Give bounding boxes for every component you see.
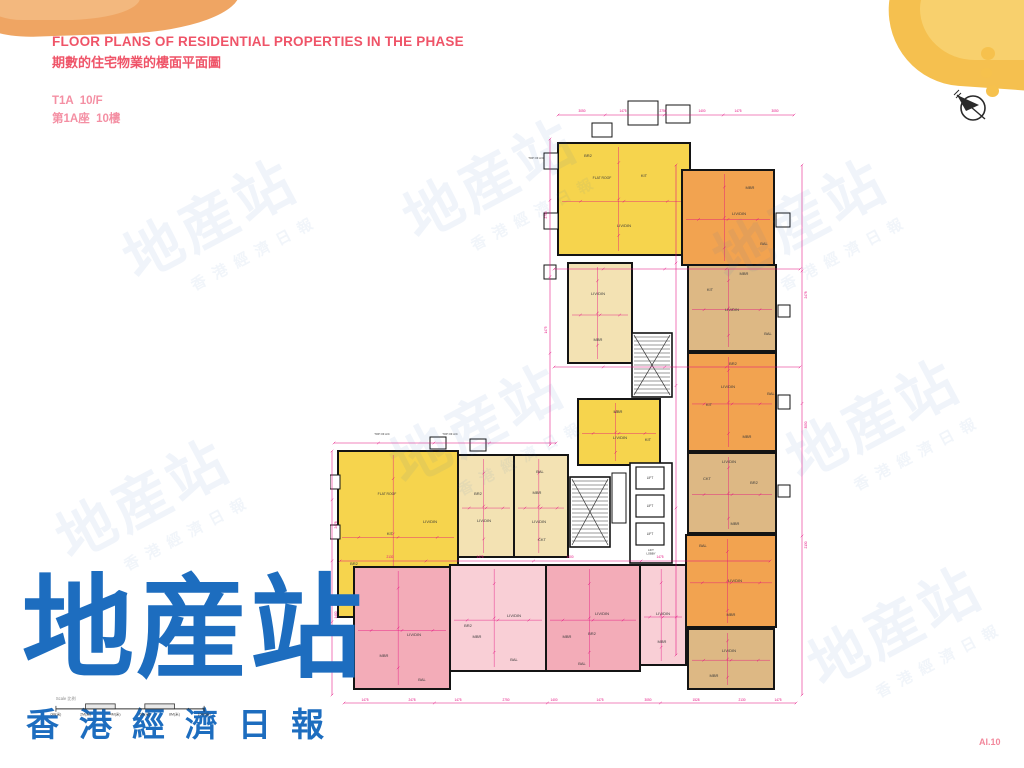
dimension-label: 2130 [738,698,745,702]
dimension-label: 1528 [692,698,699,702]
room-label: KIT [641,173,648,178]
floor-plan-svg: FLAT ROOFKITLIV/DINBR2MBRLIV/DINBALLIV/D… [330,95,820,710]
scale-tick-label: 0M(米) [51,712,62,717]
watermark-main: 地産站 [106,133,313,296]
watercolor-splash-top-left [0,0,241,38]
room-label: LIV/DIN [595,611,609,616]
unit: LIV/DINMBRBAL [354,567,450,689]
room-label: KIT [707,287,714,292]
plan-note: TOP OF A/C [442,432,458,436]
room-label: BR2 [350,561,359,566]
room-label: MBR [563,634,572,639]
unit: BALMBRLIV/DINCKT [514,455,568,557]
room-label: LIV/DIN [407,632,421,637]
page-number: AI.10 [979,737,1001,747]
room-label: BR2 [584,153,593,158]
header: FLOOR PLANS OF RESIDENTIAL PROPERTIES IN… [52,34,464,126]
lifts: LIFTLIFTLIFTLIFTLOBBY [636,467,664,556]
floor-plan: FLAT ROOFKITLIV/DINBR2MBRLIV/DINBALLIV/D… [330,95,820,710]
unit: FLAT ROOFKITLIV/DINBR2 [558,143,690,255]
unit: LIV/DINMBR [640,565,686,665]
room-label: MBR [380,653,389,658]
unit: MBRLIV/DINKIT [578,399,660,465]
watermark: 地産站香港經濟日報 [791,540,1009,724]
dimension-label: 3050 [644,698,651,702]
room-label: BAL [578,661,586,666]
room-label: LIV/DIN [722,648,736,653]
room-label: BAL [699,543,707,548]
dimension-label: 1400 [566,555,573,559]
tower-floor-label-chinese: 第1A座 10樓 [52,110,464,126]
unit: LIV/DINMBR [568,263,632,363]
room-label: MBR [594,337,603,342]
room-label: LIV/DIN [507,613,521,618]
unit: MBRKITLIV/DINBAL [688,265,776,351]
lift-label: LIFT [647,532,654,536]
plan-note: TOP OF A/C [374,432,390,436]
room-label: MBR [710,673,719,678]
watercolor-splash-top-right [884,0,1024,91]
room-label: LIV/DIN [725,307,739,312]
dimension-label: 2130 [386,555,393,559]
dimension-label: 1475 [544,326,548,333]
watermark: 地産站香港經濟日報 [106,133,324,317]
tower-floor-label: T1A 10/F [52,95,464,107]
dimension-label: 2750 [544,211,548,218]
room-label: BR2 [750,480,759,485]
room-label: CKT [538,537,547,542]
unit: LIV/DINCKTBR2MBR [688,453,776,533]
room-label: LIV/DIN [732,211,746,216]
room-label: KIT [706,402,713,407]
room-label: LIV/DIN [722,459,736,464]
splash-dot [981,47,995,60]
room-label: LIV/DIN [423,519,437,524]
room-label: LIV/DIN [477,518,491,523]
unit: LIV/DINBR2MBRBAL [546,565,640,671]
dimension-label: 2478 [334,521,338,528]
scale-tick-label: 4M(米) [110,712,121,717]
dimension-label: 3050 [578,109,585,113]
room-label: BAL [510,657,518,662]
dimension-label: 1475 [734,109,741,113]
room-label: BAL [760,241,768,246]
room-label: BR2 [474,491,483,496]
scale-tick-label: 6M(米) [139,712,150,717]
room-label: BAL [767,391,775,396]
room-label: LIV/DIN [591,291,605,296]
site-logo-main: 地産站 [22,570,364,688]
unit: LIV/DINMBR [688,629,774,689]
dimension-label: 2478 [804,291,808,298]
room-label: LIV/DIN [532,519,546,524]
room-label: CKT [703,476,712,481]
watermark-main: 地産站 [39,413,246,576]
dimension-label: 2750 [502,698,509,702]
room-label: MBR [746,185,755,190]
dimension-label: 1475 [476,555,483,559]
scale-tick-label: 8M(米) [169,712,180,717]
scale-bar-label: Scale 比例 [56,695,76,701]
room-label: MBR [658,639,667,644]
room-label: MBR [727,612,736,617]
scale-bar-svg: Scale 比例0M(米)2M(米)4M(米)6M(米)8M(米)10M(米) [50,694,218,720]
unit: BR2LIV/DINMBRBAL [450,565,546,671]
dimension-label: 1475 [361,698,368,702]
dimension-label: 1400 [550,698,557,702]
room-label: MBR [743,434,752,439]
room-label: BAL [764,331,772,336]
room-label: MBR [740,271,749,276]
room-label: BR2 [464,623,473,628]
watermark-sub: 香港經濟日報 [187,209,324,295]
room-label: MBR [731,521,740,526]
unit: MBRLIV/DINBAL [682,170,774,265]
dimension-label: 1475 [619,109,626,113]
lift-lobby-label: LOBBY [646,552,655,556]
watercolor-splash-top-left-light [0,0,140,20]
dimension-label: 2750 [659,109,666,113]
room-label: KIT [387,531,394,536]
page-title-chinese: 期數的住宅物業的樓面平面圖 [52,52,464,71]
watermark-sub: 香港經濟日報 [120,489,257,575]
room-label: LIV/DIN [613,435,627,440]
unit: BALLIV/DINMBR [686,535,776,627]
room-label: LIV/DIN [728,578,742,583]
unit: BR2LIV/DINKITMBRBAL [688,353,776,451]
lift-label: LIFT [647,476,654,480]
dimension-label: 1400 [334,611,338,618]
room-label: BR2 [588,631,597,636]
scale-bar: Scale 比例0M(米)2M(米)4M(米)6M(米)8M(米)10M(米) [50,694,218,720]
dimension-label: 3050 [804,421,808,428]
room-label: KIT [645,437,652,442]
page-title: FLOOR PLANS OF RESIDENTIAL PROPERTIES IN… [52,34,464,49]
room-label: BAL [418,677,426,682]
scale-tick-label: 2M(米) [80,712,91,717]
plan-note: TOP OF A/C [528,156,544,160]
dimension-label: 1475 [454,698,461,702]
dimension-label: 1400 [698,109,705,113]
room-label: MBR [473,634,482,639]
room-label: FLAT ROOF [378,492,397,496]
room-label: BR2 [729,361,738,366]
watermark-sub: 香港經濟日報 [850,409,987,495]
dimension-label: 1475 [596,698,603,702]
splash-dot [981,68,992,78]
north-compass-icon [952,86,992,126]
lift-label: LIFT [647,504,654,508]
room-label: MBR [614,409,623,414]
watermark-sub: 香港經濟日報 [872,616,1009,702]
scale-tick-label: 10M(米) [198,712,211,717]
watercolor-splash-top-right-light [920,0,1024,60]
watermark-main: 地産站 [791,540,998,703]
room-label: FLAT ROOF [593,176,612,180]
unit: BR2LIV/DIN [458,455,514,557]
dimension-label: 2478 [408,698,415,702]
dimension-label: 3050 [771,109,778,113]
watermark: 地産站香港經濟日報 [39,413,257,597]
dimension-label: 1475 [656,555,663,559]
dimension-label: 2130 [804,541,808,548]
room-label: LIV/DIN [721,384,735,389]
dimension-label: 1475 [774,698,781,702]
room-label: LIV/DIN [656,611,670,616]
page: FLOOR PLANS OF RESIDENTIAL PROPERTIES IN… [0,0,1024,768]
room-label: BAL [536,469,544,474]
room-label: LIV/DIN [617,223,631,228]
room-label: MBR [533,490,542,495]
